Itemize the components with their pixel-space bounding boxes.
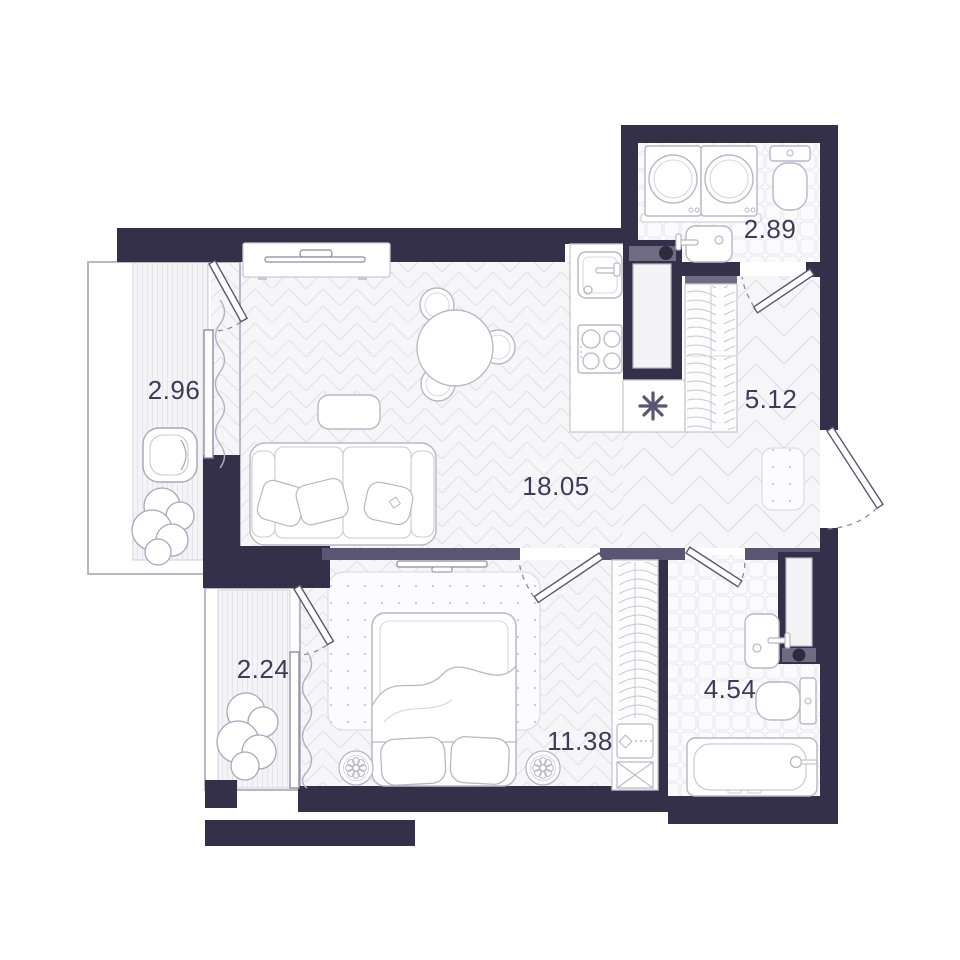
wall-bottom-left [205,820,415,846]
room-area-label-living-kitchen: 18.05 [522,471,590,501]
room-area-label-balcony-left: 2.96 [148,375,201,405]
room-area-label-bedroom: 11.38 [547,726,613,756]
pouf-flower-icon [339,751,373,785]
wall-top-bath [621,125,838,143]
bed-icon [372,613,516,786]
wall-l-horizontal [203,546,330,588]
washing-machine-icon [701,146,757,216]
closet-drawer-icon [617,724,653,758]
floor-plan-drawing: 2.96 2.89 5.12 18.05 2.24 11.38 4.54 [0,0,960,960]
wall-right-lower [820,528,838,824]
pillow-icon [380,737,446,786]
stove-icon [578,325,622,373]
closet-shoebox-icon [617,762,653,788]
dining-table-icon [417,310,493,386]
kitchen-sink-icon [578,252,622,298]
wall-closet-bath [657,555,668,790]
room-area-label-bathroom-bottom: 4.54 [704,674,757,704]
pillow-icon [450,736,510,785]
room-area-label-bathroom-top: 2.89 [744,214,797,244]
vent-shaft-icon [778,552,820,664]
room-area-label-hallway: 5.12 [745,384,798,414]
entry-door [827,427,883,529]
toilet-icon [770,146,810,210]
toilet-icon [756,678,816,724]
vent-shaft-icon [623,240,682,380]
kitchen-block [570,240,685,432]
door-leaf [827,427,883,508]
bathtub-icon [687,738,817,796]
balcony-bottom-glazing [290,652,299,788]
wardrobe-icon [685,276,737,432]
vent-asterisk-icon [623,380,685,432]
sofa-icon [250,443,436,545]
partition-living-bedroom-2 [600,548,685,560]
washing-machine-icon [645,146,701,216]
room-area-label-balcony-bottom: 2.24 [237,654,290,684]
floor-plan-page: 2.96 2.89 5.12 18.05 2.24 11.38 4.54 [0,0,960,960]
bedroom-closet-icon [612,560,658,790]
wall-bath-bottom-2 [668,796,828,824]
tv-console-icon [243,243,390,280]
hallway-floor-2 [623,432,737,548]
pouf-flower-icon [526,751,560,785]
partition-living-bedroom-1 [322,548,520,560]
wall-balcony-stub [205,780,237,808]
balcony-left-glazing [204,330,213,458]
wall-right-upper [820,125,838,430]
armchair-icon [143,428,197,482]
coffee-table-icon [318,395,380,429]
door-mat-icon [762,448,804,510]
